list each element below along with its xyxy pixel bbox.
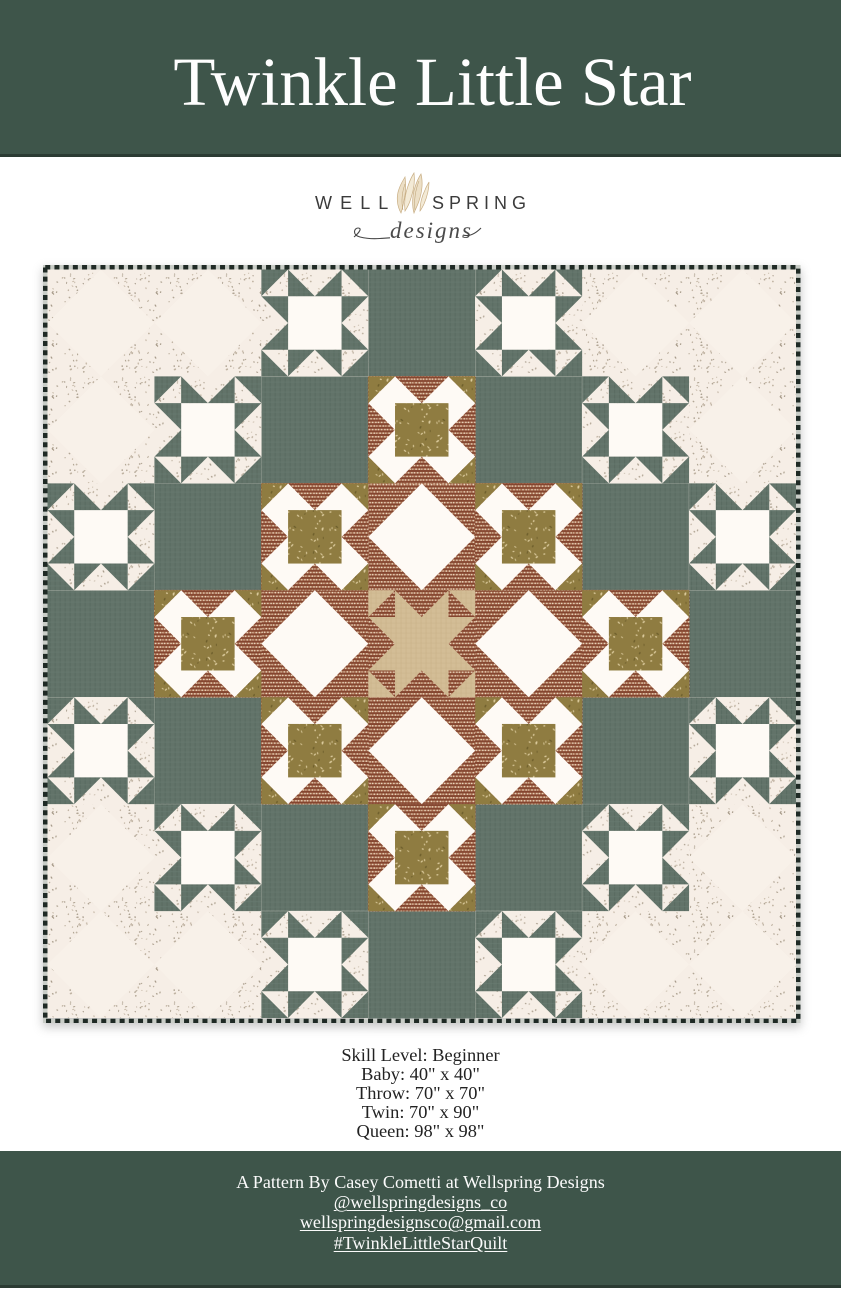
svg-text:designs: designs [390, 218, 473, 243]
